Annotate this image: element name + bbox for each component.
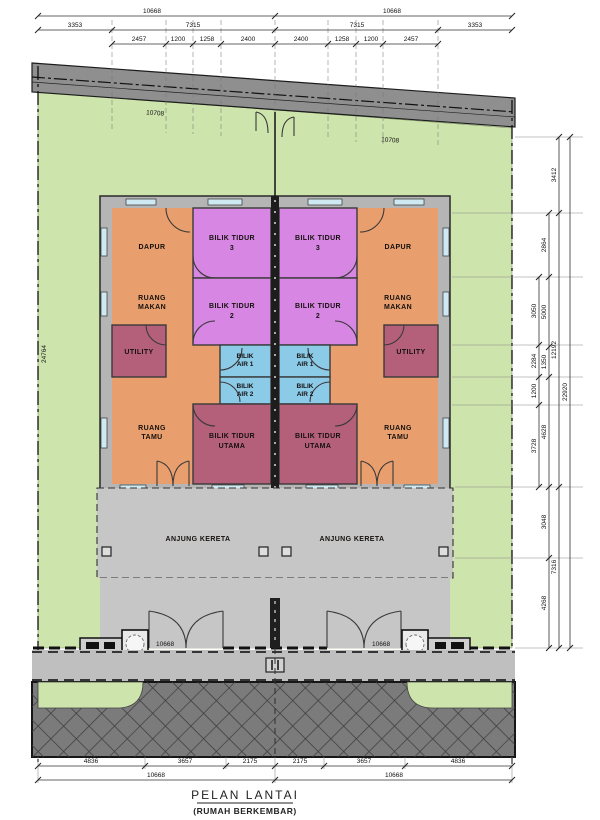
label-bt-utama-left: BILIK TIDUR: [209, 433, 255, 440]
svg-text:10668: 10668: [147, 772, 165, 779]
floor-plan-sheet: 10708 10708 10668 10668 3353 7315 7315 3…: [0, 0, 600, 820]
right-dimension-lines: 3050 2284 1200 3728 2864 5000 1350 4628 …: [531, 134, 573, 651]
label-ruang-makan-left: RUANG: [138, 295, 166, 302]
left-boundary-dim: 24764: [41, 345, 48, 363]
road-verge-right: [407, 682, 512, 708]
svg-text:TAMU: TAMU: [141, 434, 162, 441]
label-dapur-left: DAPUR: [139, 244, 166, 251]
svg-text:MAKAN: MAKAN: [138, 304, 166, 311]
svg-text:3353: 3353: [68, 22, 83, 29]
gate-dim-left: 10668: [156, 641, 174, 648]
svg-text:1200: 1200: [531, 383, 538, 398]
svg-text:3657: 3657: [357, 758, 372, 765]
svg-text:4836: 4836: [451, 758, 466, 765]
label-bt3-right: BILIK TIDUR: [295, 235, 341, 242]
label-bilik-air2-left: BILIK: [237, 383, 254, 390]
drawing-title: PELAN LANTAI (RUMAH BERKEMBAR): [191, 788, 299, 816]
svg-text:1200: 1200: [364, 36, 379, 43]
center-fence-post: [270, 598, 280, 648]
svg-text:3353: 3353: [468, 22, 483, 29]
svg-text:2400: 2400: [241, 36, 256, 43]
roof-dim-left: 10708: [146, 109, 165, 117]
svg-text:2457: 2457: [132, 36, 147, 43]
svg-text:22920: 22920: [562, 383, 569, 401]
svg-text:7315: 7315: [350, 22, 365, 29]
label-bt-utama-right: BILIK TIDUR: [295, 433, 341, 440]
room-bilik-tidur-3-left: [193, 208, 271, 278]
svg-text:MAKAN: MAKAN: [384, 304, 412, 311]
svg-text:3657: 3657: [178, 758, 193, 765]
svg-text:UTAMA: UTAMA: [219, 443, 246, 450]
svg-text:12192: 12192: [551, 341, 558, 359]
room-bilik-tidur-2-right: [279, 278, 357, 345]
svg-text:1350: 1350: [541, 354, 548, 369]
room-bilik-tidur-3-right: [279, 208, 357, 278]
svg-text:2175: 2175: [243, 758, 258, 765]
svg-text:3: 3: [230, 245, 234, 252]
svg-text:10668: 10668: [143, 8, 161, 15]
page-title: PELAN LANTAI: [191, 788, 299, 802]
roof-dim-right: 10708: [381, 136, 400, 144]
svg-text:2: 2: [316, 313, 320, 320]
label-utility-left: UTILITY: [124, 349, 153, 356]
svg-text:TAMU: TAMU: [387, 434, 408, 441]
road-verge-left: [38, 682, 143, 708]
label-ruang-makan-right: RUANG: [384, 295, 412, 302]
svg-text:7316: 7316: [551, 559, 558, 574]
svg-text:AIR 2: AIR 2: [297, 391, 314, 398]
svg-text:2864: 2864: [541, 237, 548, 252]
label-dapur-right: DAPUR: [385, 244, 412, 251]
label-ruang-tamu-right: RUANG: [384, 425, 412, 432]
svg-text:UTAMA: UTAMA: [305, 443, 332, 450]
svg-text:10668: 10668: [383, 8, 401, 15]
svg-text:3412: 3412: [551, 167, 558, 182]
svg-text:3: 3: [316, 245, 320, 252]
label-anjung-kereta-right: ANJUNG KERETA: [320, 536, 385, 543]
svg-text:1200: 1200: [171, 36, 186, 43]
svg-text:1258: 1258: [200, 36, 215, 43]
floor-plan-drawing: 10708 10708 10668 10668 3353 7315 7315 3…: [0, 0, 600, 820]
svg-text:7315: 7315: [186, 22, 201, 29]
svg-text:2457: 2457: [404, 36, 419, 43]
bottom-dimension-extension-lines: [38, 757, 512, 783]
svg-text:2: 2: [230, 313, 234, 320]
label-anjung-kereta-left: ANJUNG KERETA: [166, 536, 231, 543]
svg-text:4628: 4628: [541, 424, 548, 439]
svg-text:AIR 1: AIR 1: [297, 361, 314, 368]
gate-dim-right: 10668: [372, 641, 390, 648]
svg-text:AIR 2: AIR 2: [237, 391, 254, 398]
svg-text:3050: 3050: [531, 303, 538, 318]
svg-text:4268: 4268: [541, 595, 548, 610]
svg-text:2284: 2284: [531, 353, 538, 368]
label-ruang-tamu-left: RUANG: [138, 425, 166, 432]
label-bilik-air2-right: BILIK: [297, 383, 314, 390]
svg-text:3048: 3048: [541, 514, 548, 529]
label-bilik-air1-left: BILIK: [237, 353, 254, 360]
svg-text:2175: 2175: [293, 758, 308, 765]
label-bilik-air1-right: BILIK: [297, 353, 314, 360]
car-porch-area: [97, 488, 453, 578]
svg-text:AIR 1: AIR 1: [237, 361, 254, 368]
label-utility-right: UTILITY: [396, 349, 425, 356]
svg-text:5000: 5000: [541, 304, 548, 319]
svg-text:1258: 1258: [335, 36, 350, 43]
label-bt2-right: BILIK TIDUR: [295, 303, 341, 310]
page-subtitle: (RUMAH BERKEMBAR): [193, 806, 296, 816]
svg-text:3728: 3728: [531, 438, 538, 453]
svg-text:4836: 4836: [84, 758, 99, 765]
room-bilik-tidur-2-left: [193, 278, 271, 345]
top-dimension-row1: 10668 10668: [35, 8, 515, 19]
label-bt2-left: BILIK TIDUR: [209, 303, 255, 310]
svg-text:10668: 10668: [385, 772, 403, 779]
svg-text:2400: 2400: [294, 36, 309, 43]
label-bt3-left: BILIK TIDUR: [209, 235, 255, 242]
